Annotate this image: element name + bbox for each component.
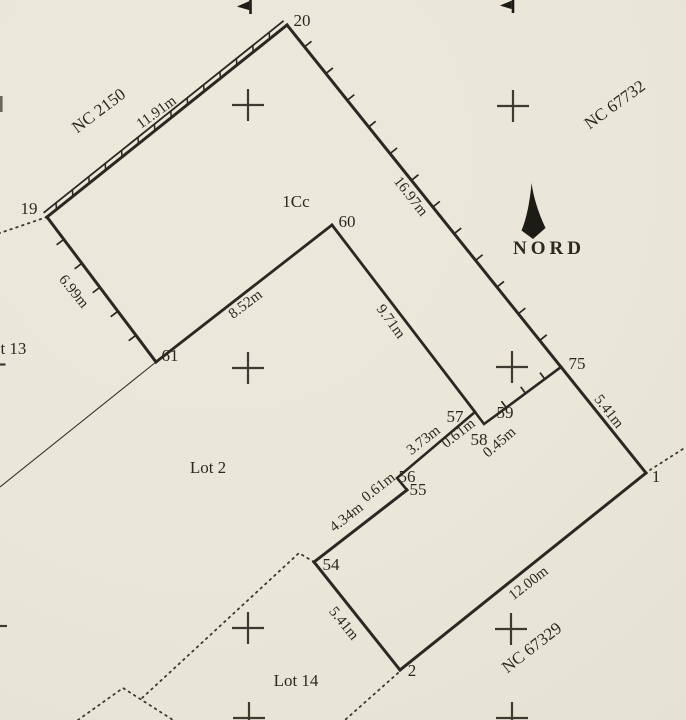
point-label-59: 59 [497,403,514,423]
point-label-56: 56 [399,467,416,487]
edge-cross-arms [0,365,7,627]
point-label-1: 1 [652,467,661,487]
point-label-60: 60 [339,212,356,232]
hatch-marks-and-grid-crosses [56,32,547,720]
point-label-2: 2 [408,661,417,681]
sheet-markers [238,0,514,14]
north-label: NORD [513,238,585,260]
lot-label-14: Lot 14 [274,671,319,691]
point-label-54: 54 [323,555,340,575]
point-label-75: 75 [569,354,586,374]
scan-edge-artifact [0,96,3,112]
lot-label-2: Lot 2 [190,458,226,478]
cadastral-plan-sheet: 20 19 60 61 75 1 2 54 55 56 57 58 59 11.… [0,0,686,720]
point-label-61: 61 [162,346,179,366]
north-arrow-icon [522,183,546,239]
point-label-19: 19 [21,199,38,219]
lot-label-13: Lot 13 [0,339,26,359]
point-label-20: 20 [294,11,311,31]
unit-label: 1Cc [282,192,309,212]
thin-boundary-line [0,362,156,487]
